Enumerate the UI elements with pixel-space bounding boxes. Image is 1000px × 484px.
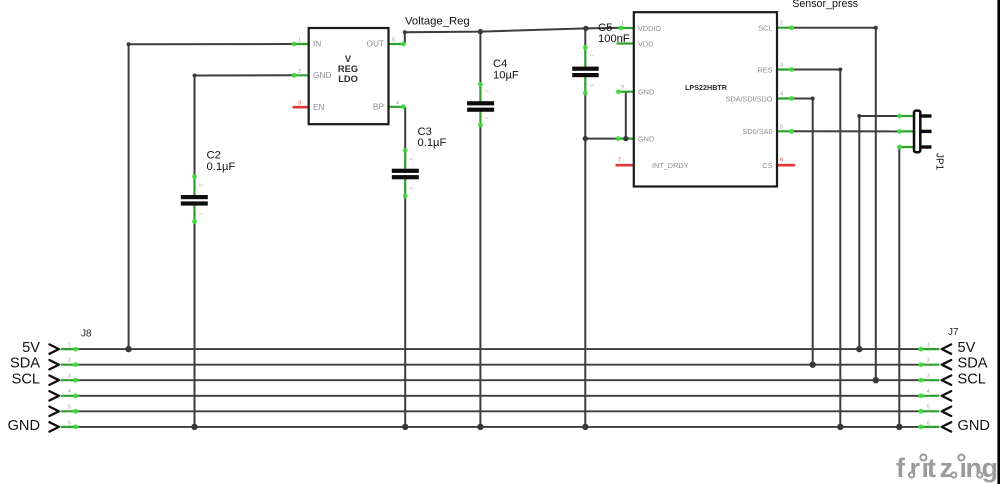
svg-text:GND: GND: [958, 418, 990, 434]
svg-text:Voltage_Reg: Voltage_Reg: [405, 15, 470, 27]
svg-text:C2: C2: [207, 150, 221, 162]
svg-text:INT_DRDY: INT_DRDY: [652, 161, 689, 170]
svg-text:OUT: OUT: [366, 39, 384, 49]
svg-text:f: f: [896, 453, 906, 483]
svg-text:C5: C5: [598, 22, 612, 34]
svg-text:0.1µF: 0.1µF: [418, 137, 447, 149]
svg-text:g: g: [982, 453, 999, 483]
svg-text:LDO: LDO: [338, 74, 358, 84]
svg-text:SD0/SA0: SD0/SA0: [742, 127, 772, 136]
svg-text:2: 2: [484, 90, 489, 93]
svg-text:5: 5: [392, 38, 395, 44]
svg-text:VDDIO: VDDIO: [638, 24, 661, 33]
svg-text:6: 6: [68, 420, 71, 426]
svg-text:C4: C4: [493, 58, 507, 70]
svg-text:2: 2: [298, 69, 301, 75]
svg-text:1: 1: [298, 38, 301, 44]
svg-text:1: 1: [409, 187, 414, 190]
svg-text:t: t: [927, 453, 936, 483]
svg-text:GND: GND: [638, 134, 654, 143]
svg-text:SCL: SCL: [12, 371, 40, 387]
svg-text:C3: C3: [418, 126, 432, 138]
svg-text:2: 2: [68, 358, 71, 364]
svg-text:GND: GND: [8, 418, 40, 434]
svg-text:z: z: [940, 453, 954, 483]
svg-text:SCL: SCL: [758, 24, 772, 33]
svg-text:LPS22HBTR: LPS22HBTR: [685, 83, 728, 92]
svg-text:9: 9: [621, 85, 624, 91]
svg-text:IN: IN: [313, 39, 321, 49]
svg-text:3: 3: [68, 374, 71, 380]
svg-text:0.1µF: 0.1µF: [207, 161, 236, 173]
svg-text:VDD: VDD: [638, 39, 653, 48]
svg-text:2: 2: [780, 21, 783, 27]
svg-text:2: 2: [199, 184, 204, 187]
svg-text:GND: GND: [313, 70, 331, 80]
svg-text:RES: RES: [757, 65, 772, 74]
svg-text:5: 5: [927, 405, 930, 411]
svg-text:3: 3: [780, 63, 783, 69]
svg-text:1: 1: [68, 343, 71, 349]
svg-text:5V: 5V: [958, 340, 976, 356]
svg-text:1: 1: [927, 343, 930, 349]
svg-text:2: 2: [589, 54, 594, 57]
svg-text:5: 5: [68, 405, 71, 411]
svg-text:1: 1: [199, 213, 204, 216]
svg-text:4: 4: [927, 389, 930, 395]
svg-text:SDA: SDA: [10, 356, 40, 372]
svg-text:SDA/SDI/SDO: SDA/SDI/SDO: [725, 94, 772, 103]
svg-text:10µF: 10µF: [493, 69, 519, 81]
svg-text:1: 1: [484, 117, 489, 120]
svg-text:2: 2: [927, 358, 930, 364]
svg-text:7: 7: [618, 158, 621, 164]
svg-text:5V: 5V: [22, 340, 40, 356]
svg-text:5: 5: [780, 124, 783, 130]
svg-text:J7: J7: [948, 327, 959, 338]
svg-text:Sensor_press: Sensor_press: [792, 0, 858, 10]
svg-text:3: 3: [298, 101, 301, 107]
svg-text:J8: J8: [81, 329, 92, 340]
svg-text:JP1: JP1: [934, 153, 945, 171]
svg-text:CS: CS: [762, 161, 772, 170]
svg-text:4: 4: [780, 92, 783, 98]
svg-text:1: 1: [589, 84, 594, 87]
svg-text:1: 1: [621, 21, 624, 27]
svg-text:4: 4: [68, 389, 71, 395]
svg-text:100nF: 100nF: [598, 33, 630, 45]
svg-text:6: 6: [780, 158, 783, 164]
svg-text:6: 6: [927, 420, 930, 426]
svg-text:V: V: [345, 54, 352, 64]
svg-text:2: 2: [409, 158, 414, 161]
svg-text:BP: BP: [373, 102, 385, 112]
svg-text:SDA: SDA: [958, 356, 988, 372]
svg-text:SCL: SCL: [958, 371, 986, 387]
svg-text:4: 4: [396, 100, 399, 106]
svg-text:REG: REG: [338, 64, 358, 74]
svg-text:3: 3: [927, 374, 930, 380]
svg-text:EN: EN: [313, 102, 325, 112]
svg-text:GND: GND: [638, 88, 654, 97]
